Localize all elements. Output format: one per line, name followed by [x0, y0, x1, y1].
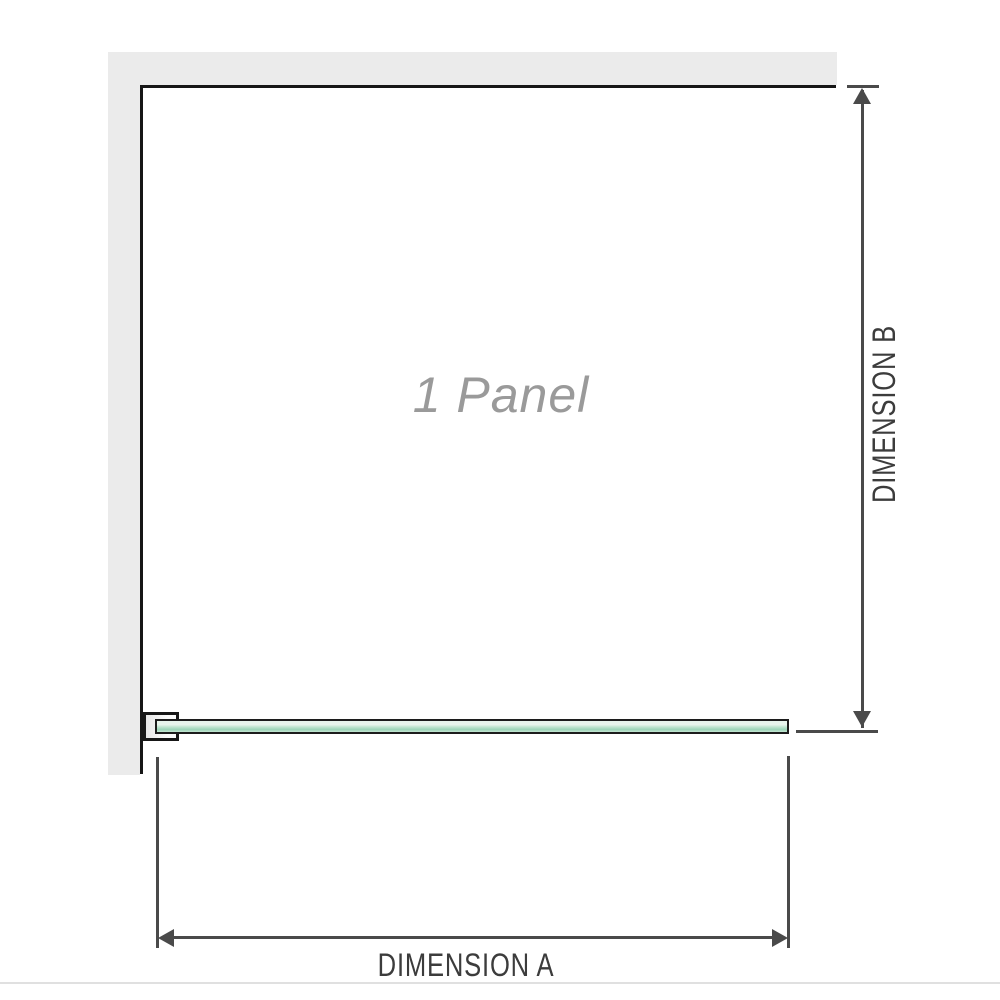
dimension-a-label: DIMENSION A [346, 948, 586, 982]
dimension-b-bottom-tick [796, 730, 878, 733]
footer-divider [0, 982, 1000, 984]
dimension-a-arrow-left-icon [158, 929, 174, 947]
panel-outline-top-line [140, 85, 836, 88]
shower-panel-dimension-diagram: 1 Panel DIMENSION B DIMENSION A [0, 0, 1000, 1000]
wall-top [108, 52, 837, 85]
dimension-b-label: DIMENSION B [867, 294, 901, 534]
dimension-b-line [861, 90, 864, 728]
panel-count-label: 1 Panel [351, 366, 651, 424]
glass-panel [155, 719, 789, 734]
dimension-a-line [166, 936, 780, 939]
dimension-a-arrow-right-icon [772, 929, 788, 947]
dimension-b-arrow-down-icon [853, 711, 871, 727]
dimension-a-right-extension-line [787, 756, 790, 948]
dimension-b-arrow-up-icon [853, 88, 871, 104]
wall-left [108, 52, 140, 775]
dimension-a-left-extension-line [156, 757, 159, 948]
panel-outline-left-line [140, 85, 143, 774]
